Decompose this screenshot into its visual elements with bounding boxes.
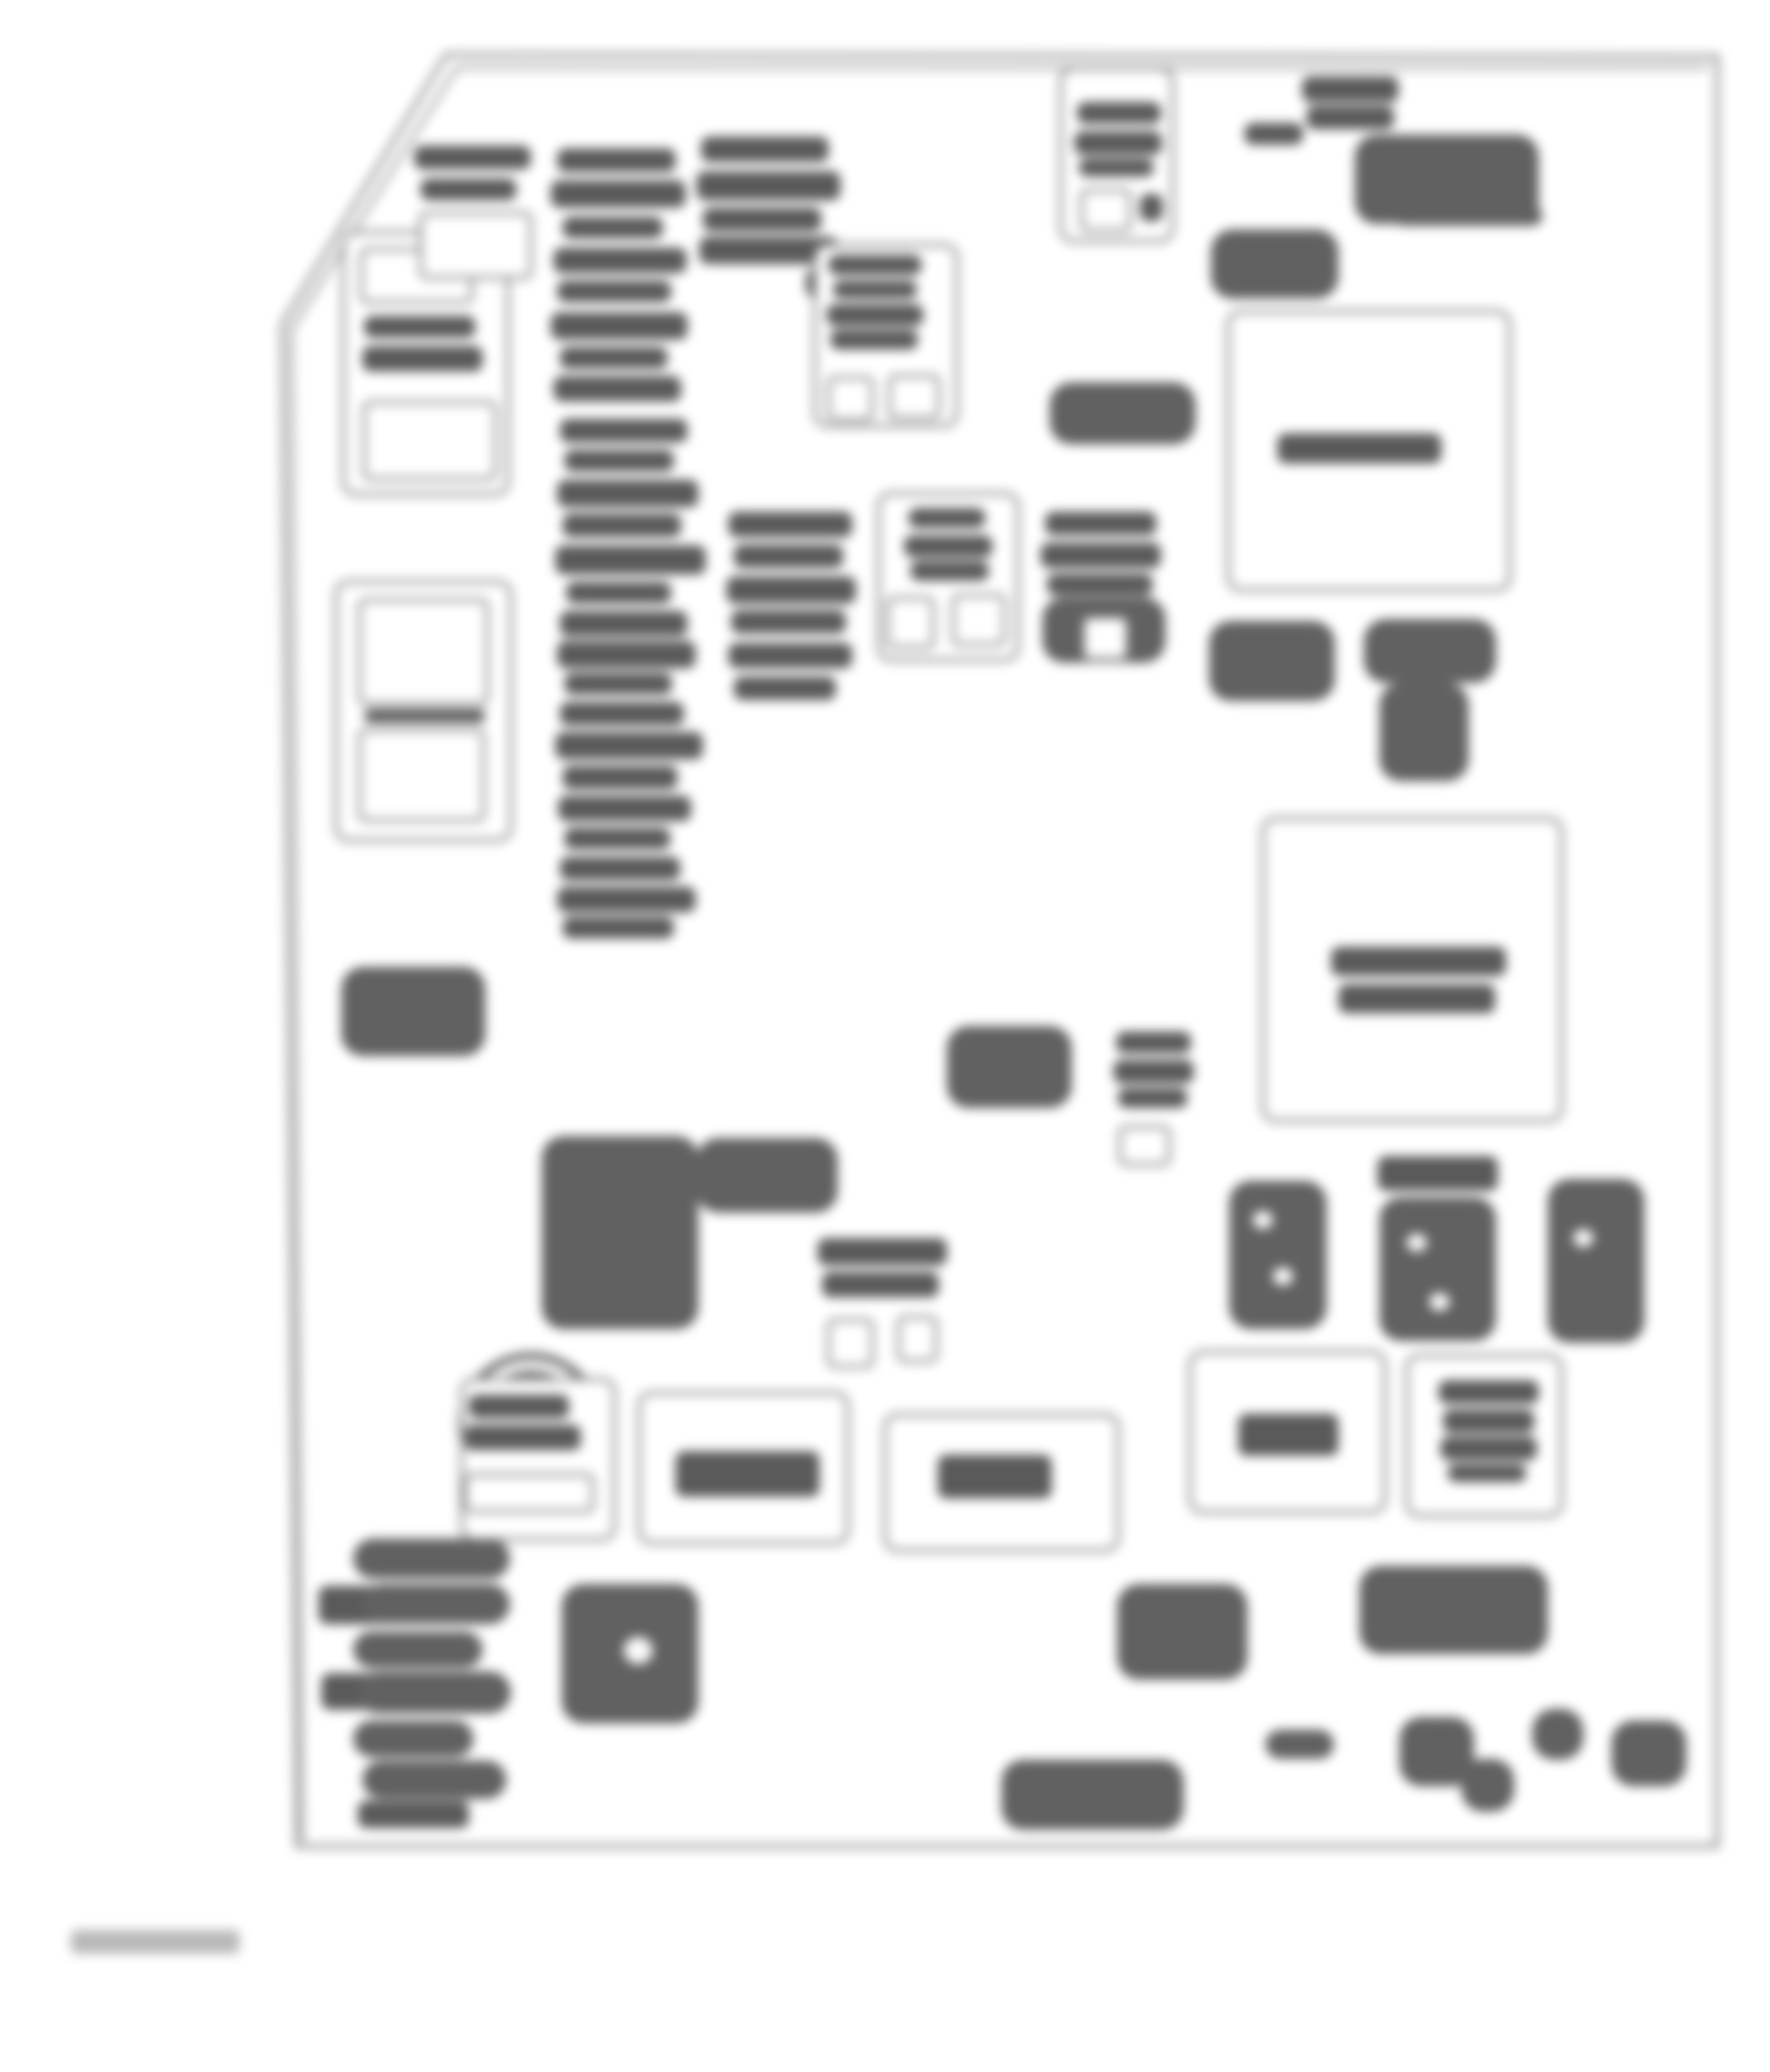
fuse-cluster-a — [1229, 1181, 1327, 1329]
fuse-box-m-cell-1 — [827, 1318, 874, 1368]
mini-fuse-row-07 — [560, 611, 687, 636]
relay-box-b-cell-top — [358, 598, 489, 706]
br-cluster-2 — [1359, 1566, 1548, 1654]
cluster-k-row-2 — [1114, 1060, 1194, 1083]
br-row-2 — [1266, 1730, 1334, 1759]
relay-box-c-label-4 — [830, 330, 918, 350]
mini-fuse-row-08 — [557, 641, 696, 668]
relay-box-a-label-row-2 — [362, 346, 483, 371]
fuse-box-m-label-2 — [822, 1272, 939, 1297]
bl-fuse-row-7 — [353, 1721, 473, 1757]
bl-fuse-row-9 — [358, 1801, 469, 1828]
bottom-box-1-label-1 — [469, 1395, 569, 1418]
bottom-box-5-label-2 — [1443, 1409, 1534, 1433]
horn-blob — [947, 1026, 1072, 1108]
br-row-4 — [1461, 1759, 1514, 1812]
fuse-box-m-label-1 — [818, 1238, 947, 1265]
mini-fuse-row-r5 — [728, 643, 852, 668]
rear-defog-label-2 — [1338, 984, 1495, 1013]
mini-fuse-row-02 — [565, 450, 674, 472]
fuse-label-col2-row-2 — [551, 180, 686, 208]
cluster-h-row-1 — [1045, 512, 1156, 535]
diode-blob — [341, 967, 485, 1056]
fuse-label-col3-row-2 — [697, 171, 840, 200]
cluster-i — [1209, 621, 1335, 701]
fuse-label-col2-row-6 — [551, 312, 687, 340]
fuse-box-m-cell-2 — [897, 1315, 938, 1363]
figure-id-mark — [71, 1930, 239, 1954]
mini-fuse-row-16 — [557, 887, 696, 912]
relay-box-a-cell-bottom — [362, 401, 497, 481]
mini-fuse-row-06 — [566, 582, 671, 604]
mini-fuse-row-15 — [560, 857, 680, 880]
bottom-box-2-label — [676, 1451, 819, 1497]
fuse-label-col3-row-3 — [703, 208, 821, 231]
relay-box-e-cell — [1080, 188, 1132, 232]
relay-box-c-cell-1 — [827, 376, 874, 422]
mini-fuse-row-17 — [563, 917, 674, 939]
relay-box-c-label-1 — [829, 255, 921, 275]
relay-box-c-label-3 — [827, 304, 923, 326]
relay-box-e-pin — [1140, 194, 1163, 221]
relay-box-e-label-1 — [1077, 102, 1161, 124]
mini-fuse-row-09 — [565, 673, 672, 695]
cluster-k-cell — [1118, 1125, 1171, 1166]
fuse-cluster-b-dot-1 — [1407, 1234, 1427, 1252]
fuse-box-d-label-3 — [910, 561, 989, 581]
cluster-k-row-3 — [1118, 1088, 1187, 1108]
mini-fuse-row-r6 — [734, 676, 836, 700]
cluster-blob-g — [1211, 229, 1338, 299]
mini-fuse-row-13 — [558, 796, 691, 821]
mini-fuse-row-14 — [565, 828, 670, 849]
fuse-box-d-label-1 — [909, 508, 985, 528]
mini-fuse-row-03 — [557, 480, 698, 507]
relay-box-c-label-2 — [833, 280, 917, 299]
cluster-h-row-3 — [1047, 574, 1153, 595]
maxi-fuse-label-1 — [1302, 76, 1399, 102]
fuse-label-col2-row-3 — [563, 217, 663, 239]
maxi-fuse-label-2 — [1307, 106, 1394, 129]
fuse-cluster-a-dot-1 — [1253, 1211, 1273, 1229]
cluster-l-mass — [542, 1136, 698, 1329]
mini-fuse-row-r4 — [731, 610, 846, 634]
fuse-cluster-b-cap — [1378, 1156, 1498, 1191]
fuse-box-d-cell-1 — [886, 596, 935, 649]
fuse-label-col2-row-7 — [560, 347, 667, 369]
fuse-box-d-cell-2 — [951, 594, 1006, 646]
cluster-k-row-1 — [1116, 1031, 1191, 1053]
flower-hole — [624, 1637, 653, 1664]
fuse-label-col1-row-2 — [421, 178, 516, 200]
cluster-h-cell — [1082, 615, 1129, 661]
br-row-1 — [1002, 1760, 1184, 1830]
mini-fuse-row-01 — [560, 419, 687, 442]
br-row-6 — [1612, 1721, 1686, 1786]
bottom-box-3-label — [938, 1455, 1052, 1498]
relay-box-a-label-row-1 — [364, 316, 475, 338]
starter-relay-label — [1277, 433, 1441, 463]
fuse-cell-1 — [419, 211, 533, 279]
mini-fuse-row-10 — [560, 702, 684, 726]
bottom-box-1-cell — [463, 1473, 595, 1513]
relay-box-b-cell-bottom — [358, 728, 485, 822]
bl-fuse-row-4 — [353, 1631, 483, 1668]
bottom-box-5 — [1405, 1354, 1563, 1518]
maxi-fuse-tail — [1393, 206, 1542, 226]
bl-fuse-row-8 — [362, 1761, 506, 1799]
rear-defog-label-1 — [1331, 947, 1506, 976]
mini-fuse-row-r1 — [728, 512, 852, 537]
bl-fuse-row-6 — [358, 1671, 511, 1713]
fuse-cluster-c-dot — [1573, 1229, 1593, 1247]
fuse-cluster-a-dot-2 — [1273, 1267, 1293, 1285]
relay-box-c-cell-2 — [888, 374, 941, 420]
mini-fuse-row-r2 — [734, 544, 843, 568]
fuse-box-d-label-2 — [904, 535, 992, 557]
relay-box-e-label-2 — [1074, 131, 1162, 155]
br-row-5 — [1532, 1709, 1583, 1760]
bottom-box-1-label-2 — [464, 1425, 581, 1450]
mini-fuse-row-12 — [563, 766, 677, 789]
bl-fuse-row-3 — [362, 1584, 510, 1624]
bottom-box-5-label-3 — [1440, 1437, 1537, 1460]
fuse-label-col2-row-1 — [557, 148, 676, 172]
mini-fuse-row-11 — [555, 732, 703, 759]
maxi-fuse-arm — [1245, 123, 1303, 145]
fuse-box-diagram — [0, 0, 1770, 2072]
cluster-l-arm — [697, 1138, 838, 1213]
cluster-j-bottom — [1379, 683, 1469, 781]
cluster-blob-f — [1050, 382, 1195, 444]
bottom-box-5-label-1 — [1439, 1380, 1539, 1404]
bl-fuse-row-1 — [353, 1539, 510, 1579]
relay-box-e-label-3 — [1079, 158, 1154, 177]
bottom-box-5-label-4 — [1448, 1464, 1526, 1482]
fuse-cluster-c — [1548, 1179, 1644, 1343]
fuse-label-col2-row-5 — [557, 280, 671, 302]
cluster-h-row-2 — [1041, 543, 1161, 568]
relay-box-b-divider-label — [364, 709, 485, 723]
fuse-cluster-b-dot-2 — [1429, 1293, 1450, 1311]
bottom-box-4-label — [1238, 1414, 1338, 1456]
mini-fuse-row-05 — [555, 545, 706, 574]
fuse-cluster-b — [1379, 1197, 1496, 1341]
mini-fuse-row-04 — [563, 513, 681, 537]
fuse-label-col2-row-8 — [554, 376, 681, 401]
fuse-label-col3-row-1 — [701, 137, 829, 162]
fuse-label-col1-row-1 — [414, 146, 531, 169]
br-cluster-1 — [1117, 1584, 1247, 1680]
mini-fuse-row-r3 — [727, 576, 856, 604]
fuse-label-col2-row-4 — [554, 248, 687, 273]
cluster-j-top — [1364, 619, 1496, 683]
